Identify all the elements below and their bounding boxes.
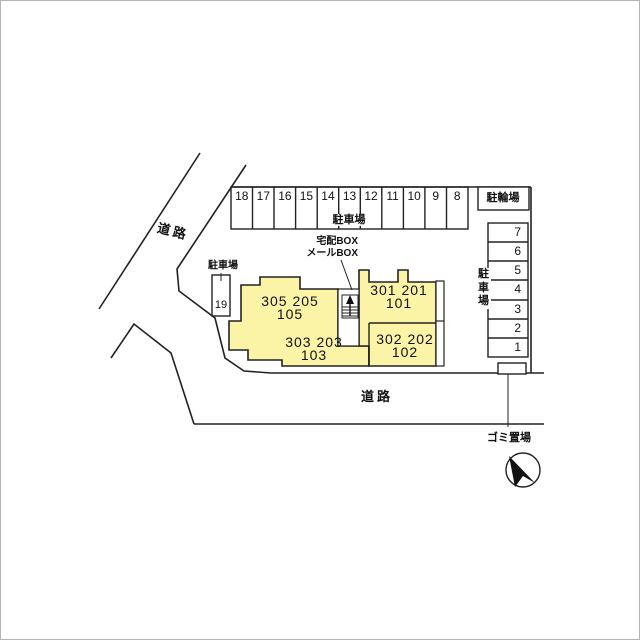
parking-space-19: 19 xyxy=(215,299,227,311)
north-arrow-icon xyxy=(506,453,540,487)
unit-label-301-201-101: 301 201 101 xyxy=(370,284,428,310)
stairs-icon xyxy=(342,295,358,318)
parking-space-10: 10 xyxy=(403,187,425,229)
parking-space-5: 5 xyxy=(488,261,528,280)
unit-102: 102 xyxy=(376,346,434,359)
parking-west-area-label: 駐車場 xyxy=(208,261,238,272)
unit-101: 101 xyxy=(370,297,428,310)
parking-space-18: 18 xyxy=(231,187,253,229)
site-plan-canvas: 道路 道路 18 17 16 15 14 13 12 11 10 9 8 駐車場… xyxy=(0,0,640,640)
parking-space-7: 7 xyxy=(488,223,528,242)
unit-label-302-202-102: 302 202 102 xyxy=(376,333,434,359)
unit-105: 105 xyxy=(261,308,319,321)
delivery-box-label: 宅配BOX xyxy=(306,236,358,248)
bicycle-parking-label: 駐輪場 xyxy=(487,192,520,204)
unit-label-305-205-105: 305 205 105 xyxy=(261,295,319,321)
parking-space-17: 17 xyxy=(253,187,275,229)
garbage-area-label: ゴミ置場 xyxy=(487,432,531,444)
parking-right-label-char-1: 駐 xyxy=(476,268,491,282)
parking-right-area-label: 駐 車 場 xyxy=(476,268,491,309)
parking-space-9: 9 xyxy=(425,187,447,229)
parking-space-11: 11 xyxy=(382,187,404,229)
parking-space-1: 1 xyxy=(488,338,528,357)
parking-space-16: 16 xyxy=(274,187,296,229)
road-label-bottom: 道路 xyxy=(361,390,393,404)
parking-right-column: 7 6 5 4 3 2 1 xyxy=(488,223,528,357)
parking-right-label-char-2: 車 xyxy=(476,282,491,296)
parking-space-4: 4 xyxy=(488,280,528,299)
boundary-zigzag-lower-left xyxy=(111,324,194,424)
parking-space-2: 2 xyxy=(488,319,528,338)
delivery-box-callout-line xyxy=(341,260,352,290)
unit-label-303-203-103: 303 203 103 xyxy=(285,336,343,362)
delivery-box-callout: 宅配BOX メールBOX xyxy=(306,236,358,260)
parking-space-15: 15 xyxy=(296,187,318,229)
site-plan-linework xyxy=(1,1,640,640)
mail-box-label: メールBOX xyxy=(306,248,358,260)
parking-right-label-char-3: 場 xyxy=(476,295,491,309)
parking-space-6: 6 xyxy=(488,242,528,261)
unit-103: 103 xyxy=(285,349,343,362)
building-east-balcony-strip xyxy=(436,281,444,366)
parking-space-3: 3 xyxy=(488,300,528,319)
garbage-box-and-leader xyxy=(498,363,526,427)
parking-space-8: 8 xyxy=(446,187,468,229)
parking-top-area-label: 駐車場 xyxy=(331,214,368,226)
